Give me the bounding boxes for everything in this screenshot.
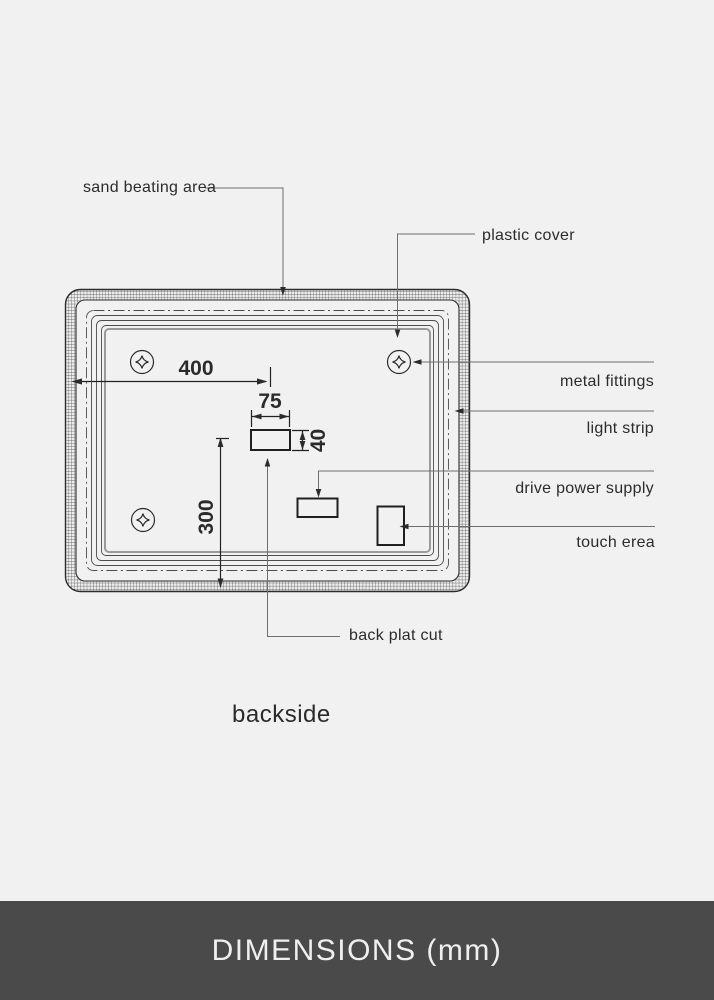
dimension-75-value: 75 xyxy=(258,390,282,413)
callout-sand-beating-area-label: sand beating area xyxy=(83,179,216,196)
callout-drive-power-supply-label: drive power supply xyxy=(515,480,654,497)
footer-title: DIMENSIONS (mm) xyxy=(212,934,503,968)
dimension-400-value: 400 xyxy=(178,357,213,380)
callout-sand-beating-area: sand beating area xyxy=(83,179,286,296)
dimension-300-value: 300 xyxy=(195,499,218,534)
callout-plastic-cover-label: plastic cover xyxy=(482,227,575,244)
callout-light-strip: light strip xyxy=(455,408,655,437)
callout-back-plate-cut-label: back plat cut xyxy=(349,627,443,644)
view-label: backside xyxy=(232,701,331,728)
back-plate-cutout xyxy=(251,430,290,450)
drive-power-supply-box xyxy=(298,499,338,518)
callout-metal-fittings-label: metal fittings xyxy=(560,373,654,390)
dimension-40-value: 40 xyxy=(307,429,330,452)
callout-light-strip-label: light strip xyxy=(587,420,654,437)
callout-touch-area-label: touch erea xyxy=(576,534,655,551)
touch-area-box xyxy=(378,507,405,546)
footer-banner: DIMENSIONS (mm) xyxy=(0,901,714,1000)
technical-drawing: 400 75 40 300 xyxy=(0,0,714,1000)
page: 400 75 40 300 xyxy=(0,0,714,1000)
